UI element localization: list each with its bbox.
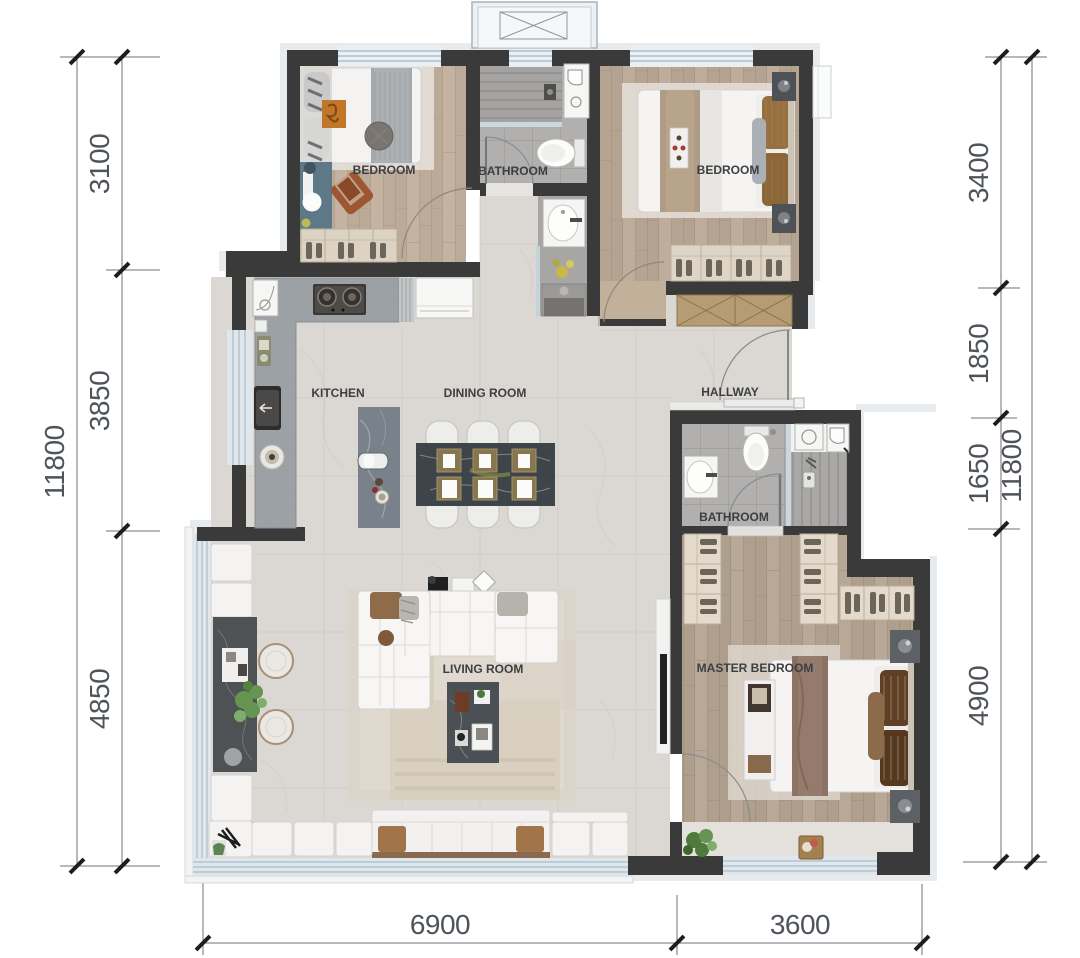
svg-text:11800: 11800: [996, 429, 1027, 502]
svg-text:4900: 4900: [963, 666, 994, 726]
svg-text:4850: 4850: [84, 669, 115, 729]
svg-text:LIVING ROOM: LIVING ROOM: [443, 662, 524, 676]
svg-text:BATHROOM: BATHROOM: [478, 164, 548, 178]
svg-text:BEDROOM: BEDROOM: [697, 163, 760, 177]
svg-text:3100: 3100: [84, 134, 115, 194]
svg-text:MASTER BEDROOM: MASTER BEDROOM: [697, 661, 814, 675]
svg-text:BEDROOM: BEDROOM: [353, 163, 416, 177]
svg-text:1850: 1850: [963, 324, 994, 384]
svg-text:3400: 3400: [963, 143, 994, 203]
svg-text:BATHROOM: BATHROOM: [699, 510, 769, 524]
svg-text:3600: 3600: [770, 909, 830, 940]
svg-text:HALLWAY: HALLWAY: [701, 385, 759, 399]
svg-text:11800: 11800: [39, 425, 70, 498]
svg-text:KITCHEN: KITCHEN: [311, 386, 364, 400]
svg-text:1650: 1650: [963, 444, 994, 504]
svg-text:DINING ROOM: DINING ROOM: [444, 386, 527, 400]
svg-text:6900: 6900: [410, 909, 470, 940]
svg-text:3850: 3850: [84, 371, 115, 431]
